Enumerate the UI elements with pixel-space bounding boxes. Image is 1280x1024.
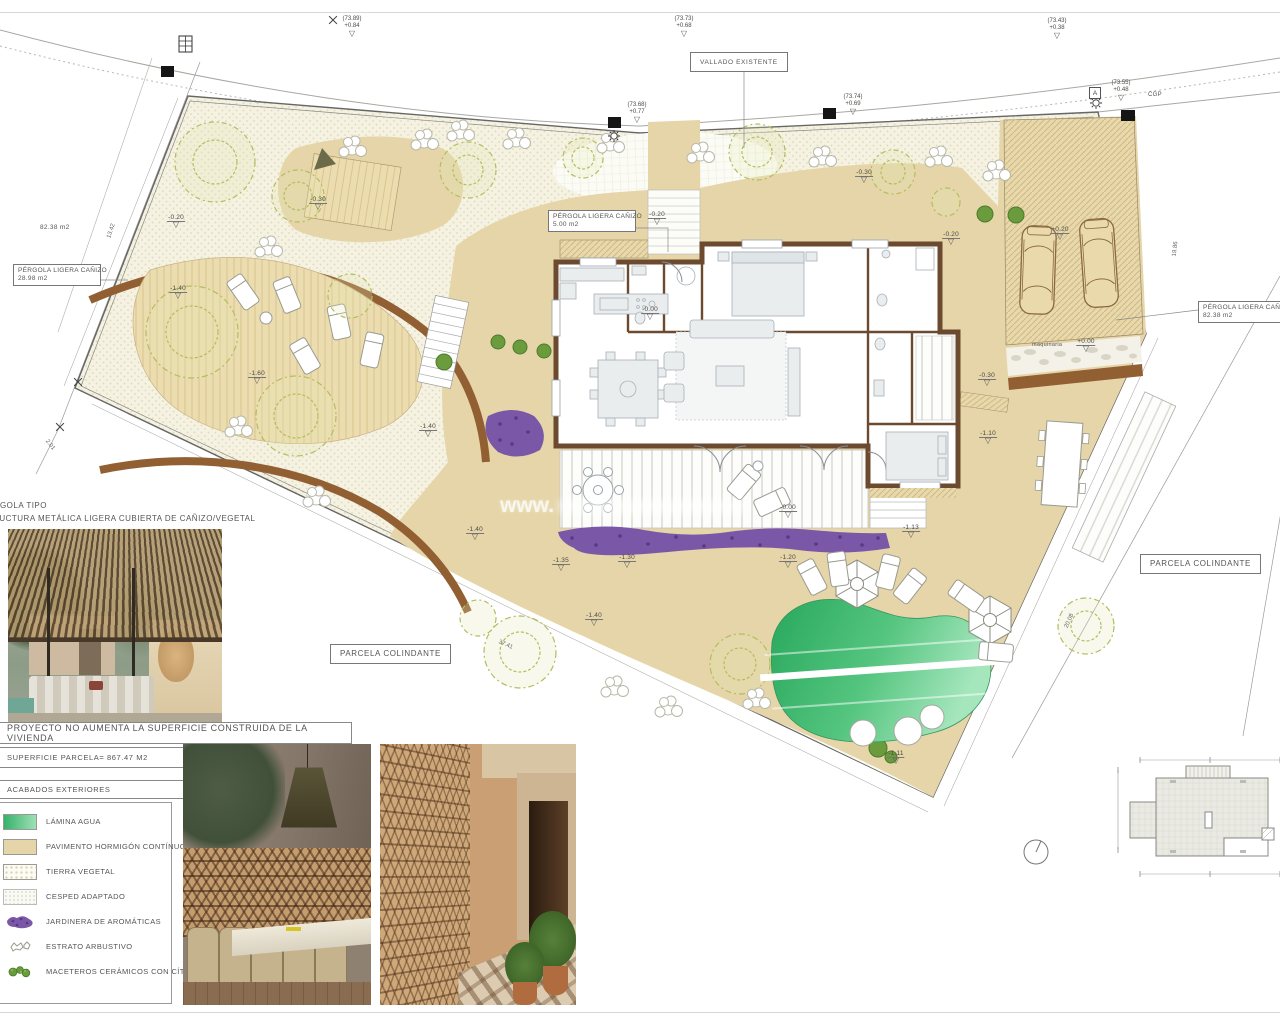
maquinaria-label: maquinaria	[1032, 342, 1062, 348]
elevation-marker: -0.30▽	[855, 169, 873, 183]
benchmark: (73.68)+0.77▽	[627, 102, 646, 123]
pergola-tipo-subtitle: ESTRUCTURA METÁLICA LIGERA CUBIERTA DE C…	[0, 514, 255, 523]
legend-item: PAVIMENTO HORMIGÓN CONTÍNUO	[3, 834, 171, 859]
pergola28-label: PÉRGOLA LIGERA CAÑIZO28.98 m2	[13, 264, 101, 286]
survey-cross-icon	[329, 16, 338, 25]
benchmark: (73.43)+0.38▽	[1047, 18, 1066, 39]
elevation-marker: +0.20▽	[1050, 226, 1069, 240]
site-plan-sheet: (73.89)+0.84▽ (73.73)+0.68▽ (73.43)+0.38…	[0, 0, 1280, 1024]
superficie-note: SUPERFICIE PARCELA= 867.47 M2	[0, 747, 214, 768]
vallado-label: VALLADO EXISTENTE	[690, 52, 788, 72]
elevation-marker: -1.13▽	[902, 524, 920, 538]
legend-item: TIERRA VEGETAL	[3, 859, 171, 884]
photo-terrace-lattice	[183, 744, 371, 1005]
elevation-marker: -1.35▽	[552, 557, 570, 571]
level-triangle-icon: ▽	[681, 30, 687, 37]
benchmark: (73.73)+0.68▽	[674, 16, 693, 37]
area-label: 82.38 m2	[40, 224, 70, 231]
outdoor-table	[1034, 420, 1090, 507]
pergola5-label: PÉRGOLA LIGERA CAÑIZO5.00 m2	[548, 210, 636, 232]
elevation-marker: -0.20▽	[648, 211, 666, 225]
legend-title-box: ACABADOS EXTERIORES	[0, 780, 214, 799]
clock-symbol	[1024, 840, 1048, 864]
plant-pot	[543, 966, 568, 995]
elevation-marker: -0.30▽	[309, 196, 327, 210]
olive-tree	[183, 744, 285, 861]
elevation-marker: -0.20▽	[167, 214, 185, 228]
legend-item: LÁMINA AGUA	[3, 809, 171, 834]
elevation-marker: -1.10▽	[979, 430, 997, 444]
pergola-canopy	[8, 529, 222, 642]
elevation-marker: -1.60▽	[248, 370, 266, 384]
a-mark: A	[1089, 87, 1101, 99]
legend-panel: LÁMINA AGUA PAVIMENTO HORMIGÓN CONTÍNUO …	[0, 802, 172, 1004]
survey-cross-icon	[56, 423, 65, 432]
elevation-marker: -1.40▽	[169, 285, 187, 299]
lattice-wall	[380, 744, 470, 1005]
cgp-label: CGP	[1148, 92, 1162, 98]
photo-corridor-lattice	[380, 744, 576, 1005]
watermark: www.	[500, 494, 748, 518]
elevation-marker: +0.00▽	[1076, 338, 1095, 352]
level-triangle-icon: ▽	[349, 30, 355, 37]
photo-pergola-reference	[8, 529, 222, 723]
elevation-marker: -0.20▽	[942, 231, 960, 245]
swatch-cesped	[3, 889, 37, 905]
roof-plan	[1118, 757, 1280, 877]
elevation-marker: -1.20▽	[779, 554, 797, 568]
benchmark: (73.55)+0.48▽	[1111, 80, 1130, 101]
swatch-lamina-agua	[3, 814, 37, 830]
project-note: PROYECTO NO AUMENTA LA SUPERFICIE CONSTR…	[0, 722, 352, 744]
elevation-marker: -0.30▽	[978, 372, 996, 386]
elevation-marker: -0.00▽	[779, 504, 797, 518]
elevation-marker: -1.40▽	[466, 526, 484, 540]
elevation-marker: -1.11▽	[887, 750, 904, 764]
legend-item: CESPED ADAPTADO	[3, 884, 171, 909]
plant-pot	[513, 982, 537, 1005]
elevation-marker: -1.30▽	[618, 554, 636, 568]
car-icon	[1079, 218, 1119, 308]
manhole-icon	[179, 36, 192, 52]
benchmark: (73.89)+0.84▽	[342, 16, 361, 37]
swatch-maceteros	[3, 964, 37, 980]
level-triangle-icon: ▽	[634, 116, 640, 123]
swatch-tierra	[3, 864, 37, 880]
level-triangle-icon: ▽	[1118, 94, 1124, 101]
benchmark: (73.74)+0.69▽	[843, 94, 862, 115]
parcela-colindante-label: PARCELA COLINDANTE	[1140, 554, 1261, 574]
elevation-marker: -1.40▽	[419, 423, 437, 437]
legend-item: ESTRATO ARBUSTIVO	[3, 934, 171, 959]
survey-cross-icon	[74, 378, 83, 387]
pergola-tipo-title: PÉRGOLA TIPO	[0, 501, 47, 510]
swatch-jardinera	[3, 914, 37, 930]
swatch-arbustivo	[3, 939, 37, 955]
parcela-colindante-label: PARCELA COLINDANTE	[330, 644, 451, 664]
level-triangle-icon: ▽	[1054, 32, 1060, 39]
legend-item: JARDINERA DE AROMÁTICAS	[3, 909, 171, 934]
level-triangle-icon: ▽	[850, 108, 856, 115]
elevation-marker: -1.40▽	[585, 612, 603, 626]
elevation-marker: -0.00▽	[641, 306, 659, 320]
swatch-pavimento	[3, 839, 37, 855]
pergola82-label: PÉRGOLA LIGERA CAÑIZO82.38 m2	[1198, 301, 1280, 323]
legend-item: MACETEROS CERÁMICOS CON CÍTRICOS	[3, 959, 171, 984]
